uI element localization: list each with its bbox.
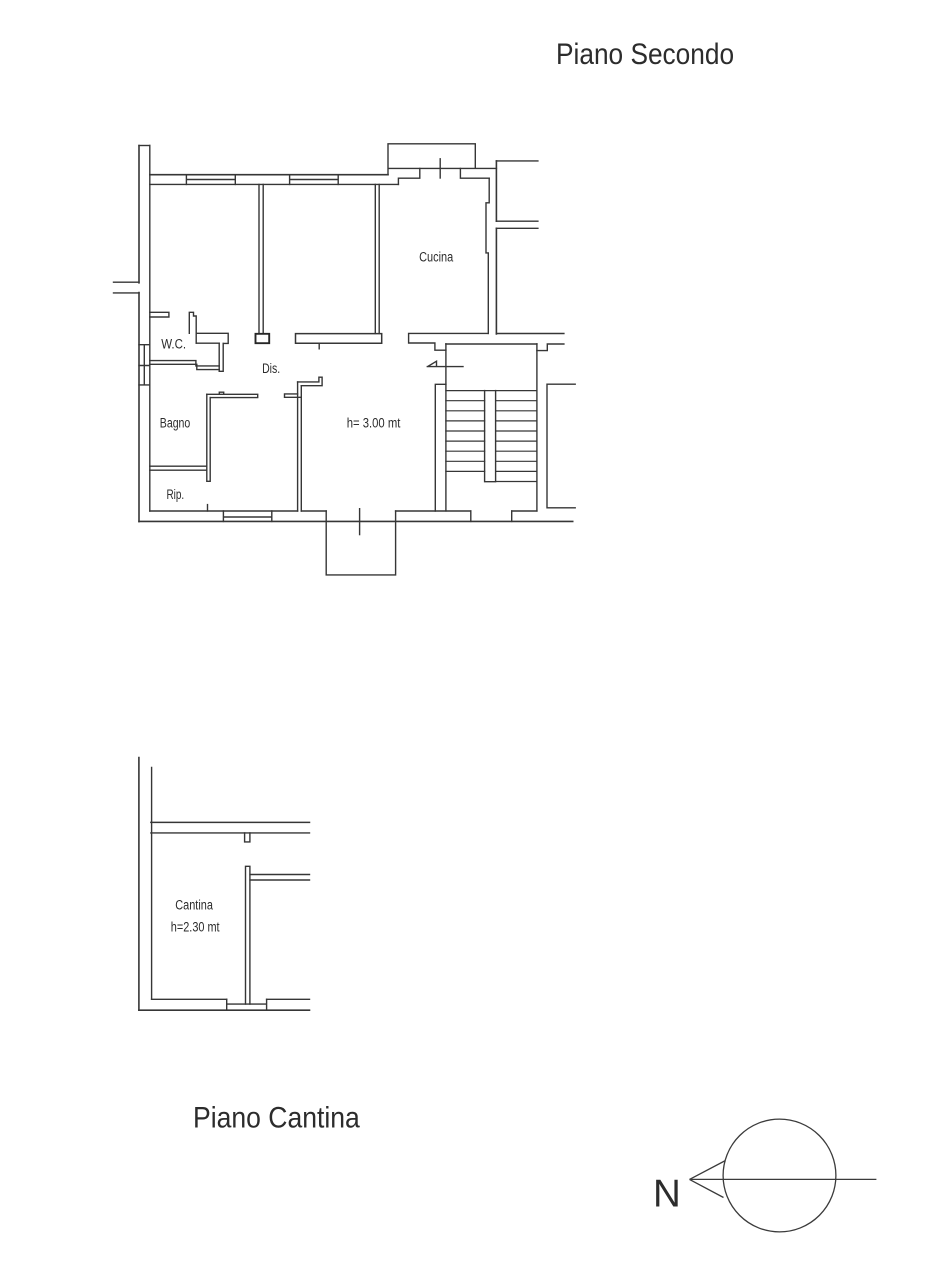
svg-text:N: N bbox=[653, 1172, 681, 1215]
svg-text:Rip.: Rip. bbox=[167, 487, 185, 502]
svg-text:Piano Cantina: Piano Cantina bbox=[193, 1103, 360, 1135]
svg-text:h= 3.00 mt: h= 3.00 mt bbox=[347, 416, 401, 431]
svg-text:W.C.: W.C. bbox=[161, 336, 186, 351]
svg-text:Cucina: Cucina bbox=[419, 249, 454, 264]
svg-text:Bagno: Bagno bbox=[160, 415, 191, 430]
svg-text:Cantina: Cantina bbox=[175, 898, 213, 913]
svg-text:h=2.30 mt: h=2.30 mt bbox=[171, 919, 220, 934]
svg-text:Piano Secondo: Piano Secondo bbox=[556, 39, 734, 71]
svg-text:Dis.: Dis. bbox=[262, 361, 280, 376]
